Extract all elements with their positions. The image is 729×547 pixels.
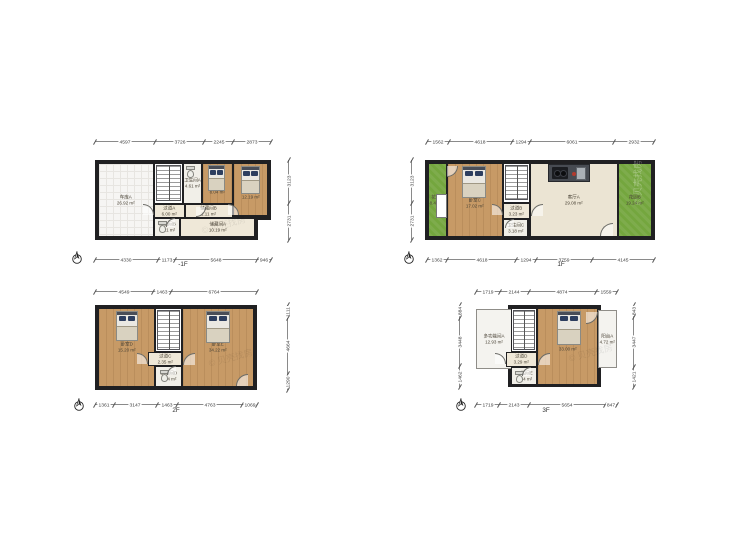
dimension-chain: 84334471421 (629, 305, 638, 387)
floor-label: 1F (551, 261, 572, 268)
stairs-icon (505, 165, 528, 200)
dimension-chain: 13624618129437594145 (427, 255, 654, 264)
compass-icon (455, 397, 467, 412)
dimension-chain: 111146641290 (283, 305, 292, 390)
bed-icon (116, 311, 138, 341)
room-过道C: 过道C2.35 m² (148, 352, 182, 366)
room-过道D: 过道D3.29 m² (506, 352, 537, 367)
dimension-chain: 1719214448741559 (476, 287, 617, 296)
bed-icon (557, 311, 581, 345)
floorplan-sheet: 车库A26.92 m²卫生间A4.61 m²卧室A8.04 m²卧室B12.19… (0, 0, 729, 547)
room-阳台A: 阳台A4.72 m² (598, 310, 617, 368)
bed-icon (208, 165, 225, 191)
room-过道A: 过道A6.00 m² (154, 204, 185, 218)
kitchen-counter-icon (548, 164, 590, 182)
bed-icon (241, 166, 260, 194)
room-过道B: 过道B3.23 m² (503, 203, 530, 219)
watermark: © 贝壳找房 (631, 160, 644, 205)
bed-icon (206, 311, 230, 343)
room-车库A: 车库A26.92 m² (98, 163, 154, 237)
floor-label: 3F (536, 407, 557, 414)
dimension-chain: 454914636764 (95, 287, 257, 296)
compass-icon (71, 250, 83, 265)
dimension-chain: 31232731 (284, 160, 293, 240)
stairs-icon (513, 310, 535, 350)
bed-icon (462, 166, 486, 198)
stairs-icon (156, 165, 181, 201)
compass-icon (403, 250, 415, 265)
dimension-chain: 31232731 (407, 160, 416, 240)
compass-icon (73, 397, 85, 412)
floor-label: 2F (166, 407, 187, 414)
dimension-chain: 15624618129460612932 (427, 137, 654, 146)
window-icon (436, 194, 447, 218)
dimension-chain: 88434481462 (455, 305, 464, 387)
toilet-icon (186, 166, 195, 178)
dimension-chain: 4597372622452873 (95, 137, 271, 146)
floor-label: -1F (173, 261, 194, 268)
stairs-icon (157, 310, 180, 350)
